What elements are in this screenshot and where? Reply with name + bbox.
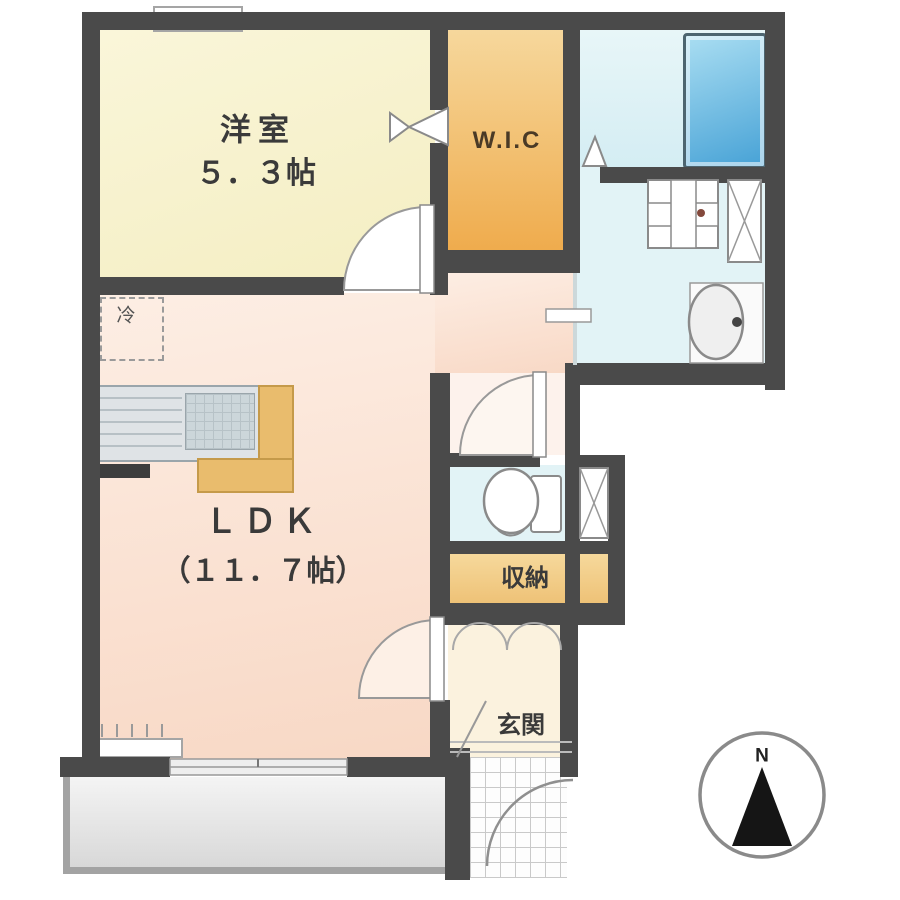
kitchen-sink: [185, 393, 255, 450]
washroom-floor: [577, 167, 767, 365]
cooktop-strip: [98, 464, 150, 478]
balcony: [63, 777, 454, 874]
ldk-label: ＬＤＫ: [205, 505, 322, 538]
toilet-floor: [445, 465, 567, 543]
compass-north-label: N: [755, 747, 769, 766]
wall-bottom-left: [60, 757, 170, 777]
ldk-floor-extension: [435, 270, 575, 375]
wall-bath-washroom: [600, 167, 765, 183]
ldk-size: （１１．７帖）: [161, 558, 364, 587]
wall-entrance-right: [560, 620, 578, 777]
wall-washroom-bottom: [565, 363, 785, 385]
wall-mid-vertical-upper: [430, 373, 450, 615]
wall-storage-bottom: [430, 603, 625, 625]
western-room-floor: [95, 25, 435, 280]
wall-left: [82, 12, 100, 777]
bathtub: [683, 33, 767, 169]
refrigerator-label: 冷: [116, 307, 135, 326]
western-room-size: ５．３帖: [196, 159, 316, 189]
wall-wic-left-upper: [430, 12, 448, 110]
wall-toilet-top: [430, 453, 540, 467]
hallway-nook-floor: [448, 373, 567, 455]
entrance-porch-tiles: [455, 757, 567, 878]
balcony-sliding-window: [170, 759, 347, 775]
washroom-left-partition: [573, 273, 577, 365]
entrance-label: 玄関: [497, 714, 545, 738]
storage-label: 収納: [501, 567, 549, 591]
wall-right-upper: [765, 12, 785, 390]
western-room-label: 洋室: [220, 115, 296, 146]
wic-label: W.I.C: [473, 129, 542, 153]
wall-western-room-bottom: [82, 277, 344, 295]
toilet-shelf-icon: [580, 468, 608, 538]
kitchen-wood-counter-horizontal: [197, 458, 294, 493]
wall-east-outer: [608, 455, 625, 625]
floor-plan: 洋室 ５．３帖 W.I.C 冷 ＬＤＫ （１１．７帖） 収納 玄関 N: [0, 0, 900, 900]
wall-wic-bottom: [430, 250, 580, 273]
wall-porch-divider: [445, 748, 470, 880]
ldk-small-window: [95, 738, 183, 758]
wall-east-vertical: [565, 385, 580, 625]
wall-wic-right: [563, 12, 580, 273]
wall-toilet-bottom: [430, 541, 625, 554]
